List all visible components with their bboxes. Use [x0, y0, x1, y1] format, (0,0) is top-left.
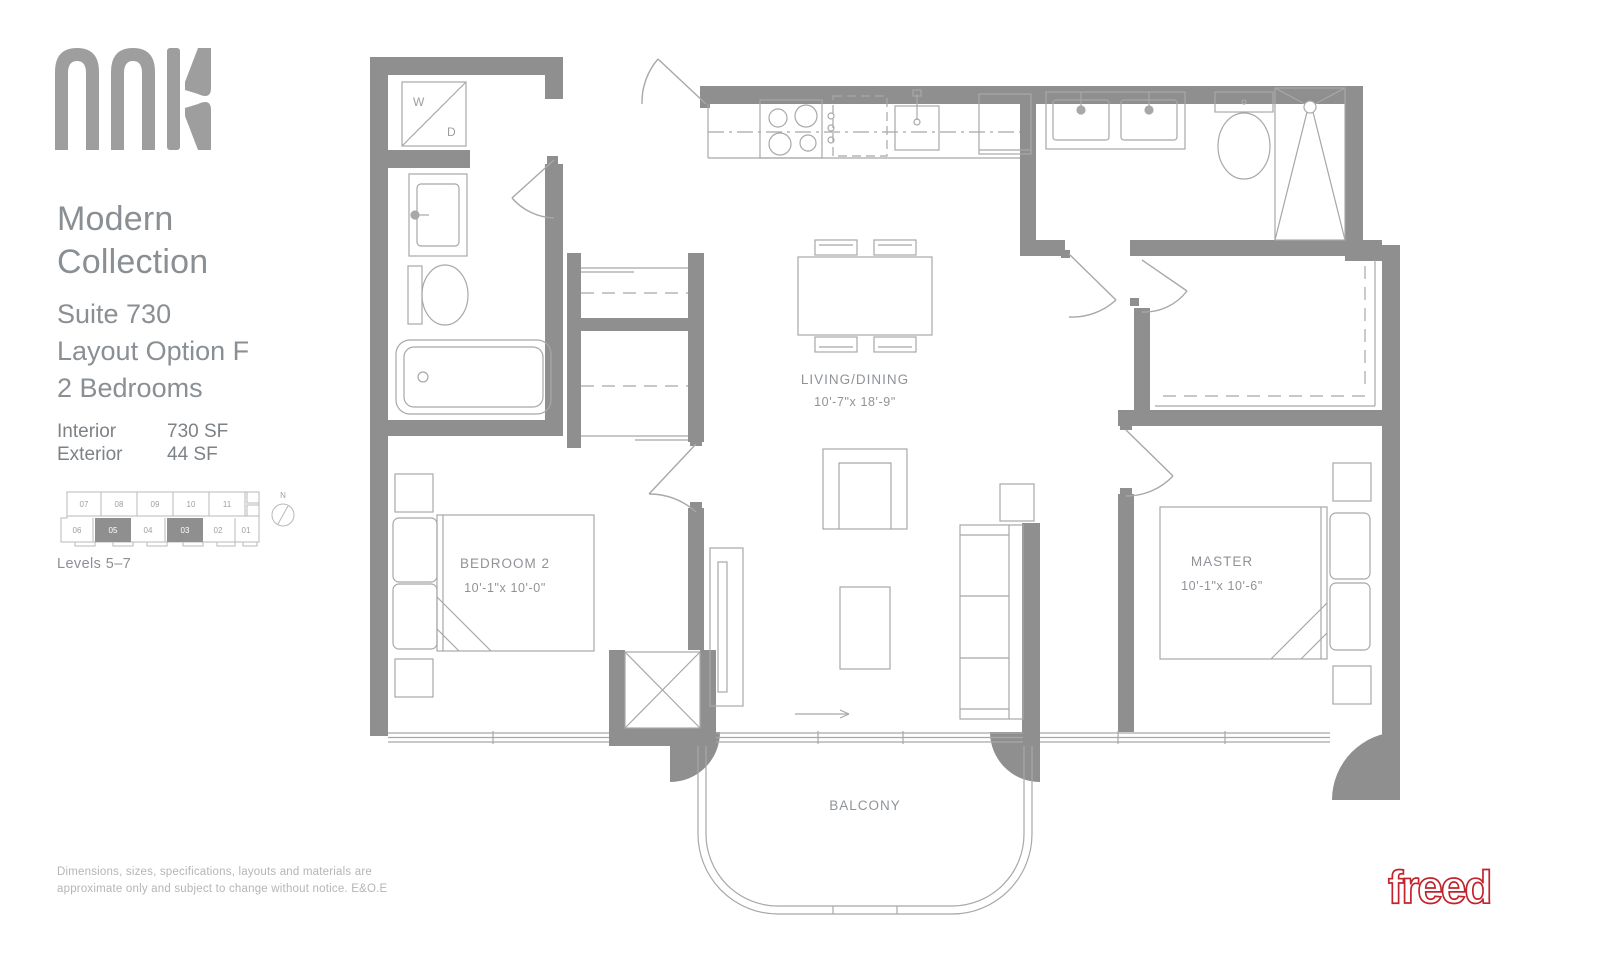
- svg-text:01: 01: [242, 526, 251, 535]
- disclaimer-line2: approximate only and subject to change w…: [57, 881, 387, 898]
- balcony-slider-window: [716, 710, 1023, 744]
- walkin-closet: [1155, 260, 1375, 406]
- svg-text:03: 03: [181, 526, 190, 535]
- freed-logo-text: freed: [1388, 861, 1490, 913]
- window-band-bedroom2: [388, 731, 609, 744]
- collection-line1: Modern: [57, 198, 208, 241]
- master-label: MASTER: [1191, 554, 1253, 569]
- kitchen-counter: [708, 104, 1020, 158]
- window-band-master: [1040, 731, 1330, 744]
- cooktop-icon: [760, 100, 834, 158]
- ensuite-toilet-icon: [1215, 92, 1273, 179]
- brochure-page: { "branding": { "logo_text": "anx", "dev…: [0, 0, 1600, 971]
- area-row-exterior: Exterior 44 SF: [57, 444, 228, 466]
- area-table: Interior 730 SF Exterior 44 SF: [57, 421, 228, 467]
- balcony-label: BALCONY: [829, 798, 901, 813]
- svg-text:06: 06: [73, 526, 82, 535]
- disclaimer-line1: Dimensions, sizes, specifications, layou…: [57, 864, 387, 881]
- anx-logo: anx: [55, 42, 215, 162]
- balcony-railing: [698, 746, 1032, 914]
- bedroom2-label: BEDROOM 2: [460, 556, 550, 571]
- bedroom2-dims: 10'-1"x 10'-0": [464, 581, 546, 595]
- dining-table-icon: [798, 240, 932, 352]
- toilet-icon: [408, 265, 468, 325]
- walls: [370, 57, 1400, 800]
- suite-block: Suite 730 Layout Option F 2 Bedrooms: [57, 296, 249, 407]
- master-dims: 10'-1"x 10'-6": [1181, 579, 1263, 593]
- bathroom-sink-icon: [409, 174, 467, 256]
- freed-logo: freed: [1382, 855, 1542, 925]
- svg-text:04: 04: [144, 526, 153, 535]
- closet-x-icon: [625, 652, 700, 728]
- svg-text:05: 05: [109, 526, 118, 535]
- exterior-value: 44 SF: [167, 444, 218, 466]
- svg-text:07: 07: [80, 500, 89, 509]
- doors: [512, 59, 1187, 512]
- washer-dryer-icon: [402, 82, 466, 146]
- side-table-icon: [1000, 484, 1034, 521]
- compass-icon: N: [272, 491, 294, 526]
- floorplan-drawing: W D LIVING/DINING 10'-7"x 18'-9" BEDROOM…: [363, 46, 1403, 938]
- living-dining-label: LIVING/DINING: [801, 372, 909, 387]
- disclaimer: Dimensions, sizes, specifications, layou…: [57, 864, 387, 898]
- dishwasher-icon: [833, 96, 887, 156]
- living-dining-dims: 10'-7"x 18'-9": [814, 395, 896, 409]
- levels-label: Levels 5–7: [57, 556, 131, 572]
- dryer-label: D: [447, 125, 456, 139]
- svg-text:10: 10: [187, 500, 196, 509]
- collection-title: Modern Collection: [57, 198, 208, 284]
- layout-option: Layout Option F: [57, 333, 249, 370]
- washer-label: W: [413, 95, 425, 109]
- collection-line2: Collection: [57, 241, 208, 284]
- svg-text:09: 09: [151, 500, 160, 509]
- plan-labels: W D LIVING/DINING 10'-7"x 18'-9" BEDROOM…: [413, 95, 1263, 813]
- keyplan: 07 08 09 10 11 06 05 04 03 02 01 N: [55, 484, 305, 554]
- sofa-icon: [960, 525, 1023, 719]
- interior-value: 730 SF: [167, 421, 228, 443]
- svg-text:08: 08: [115, 500, 124, 509]
- bathtub-icon: [396, 340, 551, 414]
- coffee-table-icon: [840, 587, 890, 669]
- bedroom-count: 2 Bedrooms: [57, 370, 249, 407]
- svg-text:N: N: [280, 491, 286, 500]
- exterior-label: Exterior: [57, 444, 167, 466]
- hall-closets: [581, 268, 688, 440]
- svg-text:11: 11: [223, 500, 232, 509]
- interior-label: Interior: [57, 421, 167, 443]
- armchair-icon: [823, 449, 907, 529]
- shower-icon: [1275, 88, 1345, 240]
- svg-text:02: 02: [214, 526, 223, 535]
- suite-number: Suite 730: [57, 296, 249, 333]
- area-row-interior: Interior 730 SF: [57, 421, 228, 443]
